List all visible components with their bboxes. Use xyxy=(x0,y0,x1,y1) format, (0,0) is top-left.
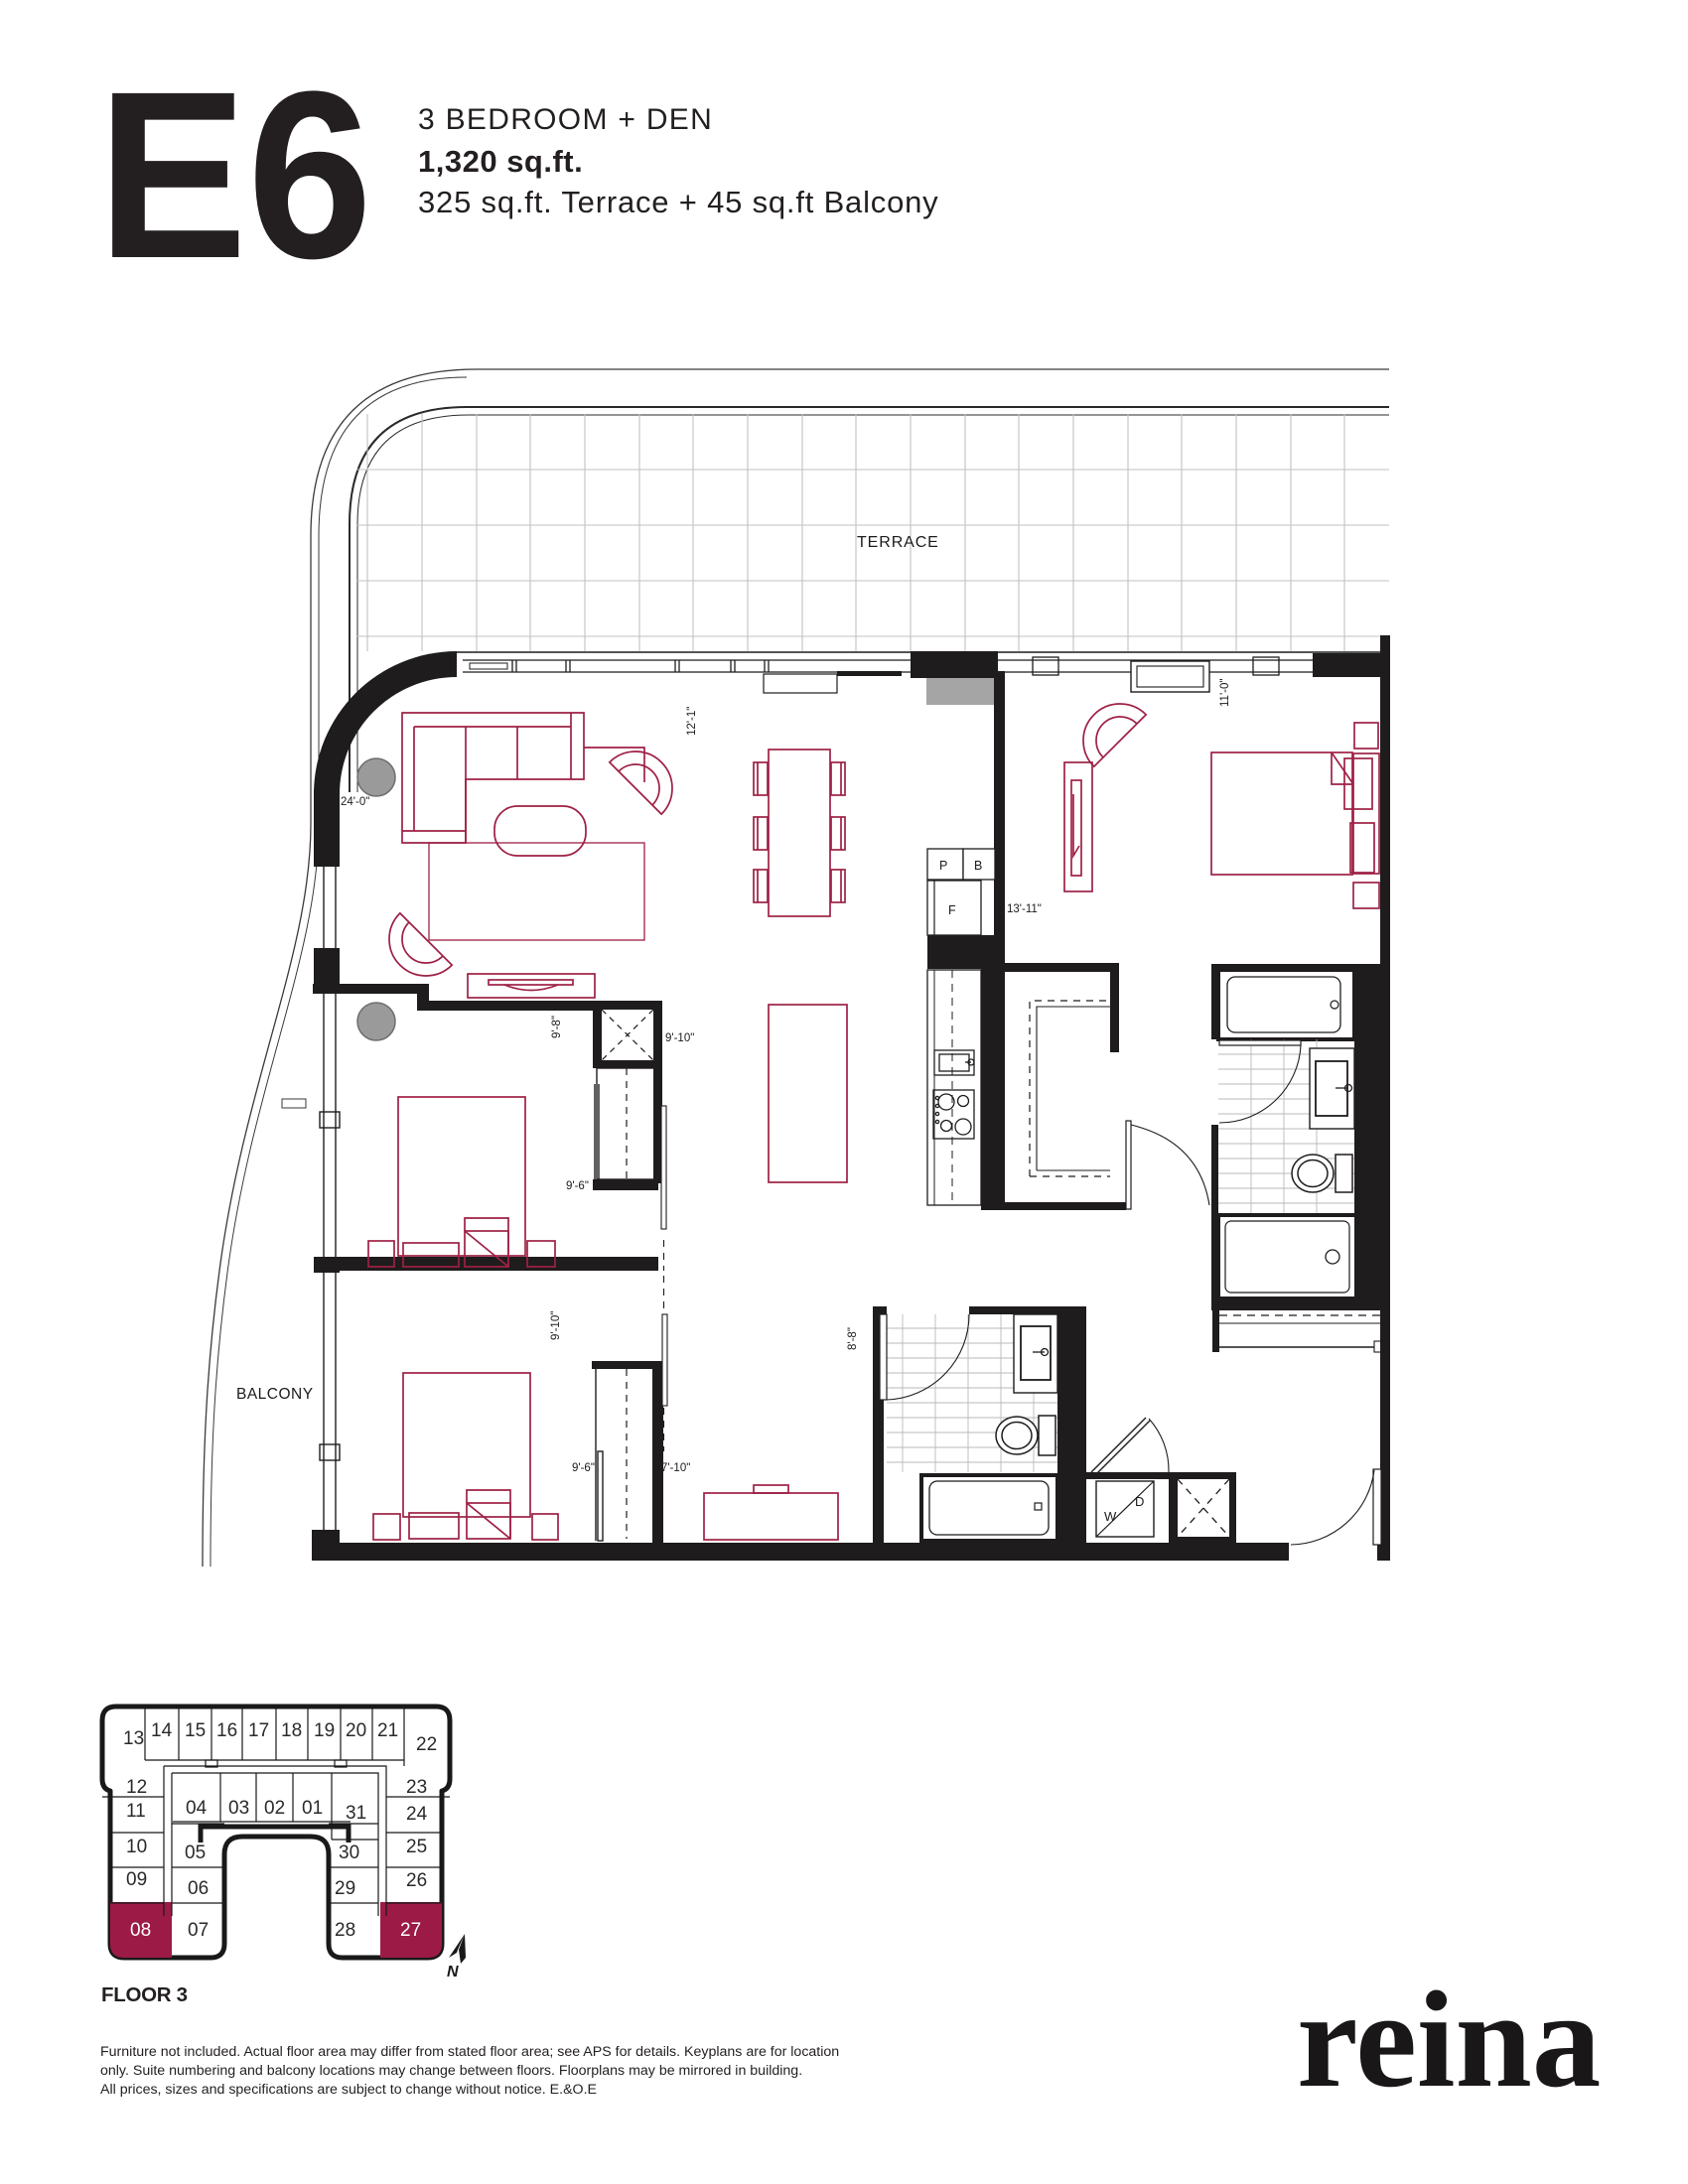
svg-text:B: B xyxy=(974,859,982,873)
svg-text:325 sq.ft. Terrace + 45 sq.ft: 325 sq.ft. Terrace + 45 sq.ft Balcony xyxy=(418,185,938,219)
svg-text:19: 19 xyxy=(314,1720,335,1741)
svg-text:All prices, sizes and specific: All prices, sizes and specifications are… xyxy=(100,2082,597,2098)
svg-text:14: 14 xyxy=(151,1720,173,1741)
svg-text:20: 20 xyxy=(346,1720,366,1741)
svg-text:9'-10": 9'-10" xyxy=(550,1311,562,1340)
svg-text:27: 27 xyxy=(400,1920,421,1941)
svg-text:1,320 sq.ft.: 1,320 sq.ft. xyxy=(418,144,583,179)
svg-text:W: W xyxy=(1104,1509,1117,1524)
svg-text:9'-8": 9'-8" xyxy=(551,1016,563,1038)
svg-text:9'-6": 9'-6" xyxy=(566,1180,589,1192)
svg-text:18: 18 xyxy=(281,1720,302,1741)
svg-text:31: 31 xyxy=(346,1803,366,1824)
svg-text:12: 12 xyxy=(126,1777,147,1798)
svg-text:8'-8": 8'-8" xyxy=(847,1327,859,1350)
svg-text:15: 15 xyxy=(185,1720,206,1741)
svg-text:reina: reina xyxy=(1297,1964,1601,2116)
svg-text:08: 08 xyxy=(130,1920,151,1941)
svg-text:22: 22 xyxy=(416,1734,437,1755)
svg-text:05: 05 xyxy=(185,1843,206,1863)
svg-text:09: 09 xyxy=(126,1869,147,1890)
svg-text:29: 29 xyxy=(335,1878,355,1899)
svg-text:16: 16 xyxy=(216,1720,237,1741)
svg-text:D: D xyxy=(1135,1494,1144,1509)
svg-text:24'-0": 24'-0" xyxy=(341,796,369,808)
svg-text:12'-1": 12'-1" xyxy=(686,707,698,736)
svg-text:25: 25 xyxy=(406,1837,427,1857)
svg-text:28: 28 xyxy=(335,1920,355,1941)
svg-text:04: 04 xyxy=(186,1798,208,1819)
svg-text:F: F xyxy=(948,903,956,917)
svg-text:N: N xyxy=(447,1964,459,1980)
svg-text:9'-10": 9'-10" xyxy=(665,1032,694,1044)
svg-text:7'-10": 7'-10" xyxy=(661,1462,690,1474)
svg-text:10: 10 xyxy=(126,1837,147,1857)
svg-text:03: 03 xyxy=(228,1798,249,1819)
svg-text:9'-6": 9'-6" xyxy=(572,1462,595,1474)
svg-text:07: 07 xyxy=(188,1920,209,1941)
svg-text:02: 02 xyxy=(264,1798,285,1819)
svg-text:11: 11 xyxy=(126,1801,146,1822)
svg-text:E6: E6 xyxy=(97,42,372,308)
svg-text:TERRACE: TERRACE xyxy=(857,534,939,551)
svg-text:3 BEDROOM + DEN: 3 BEDROOM + DEN xyxy=(418,103,713,136)
svg-text:only. Suite numbering and balc: only. Suite numbering and balcony locati… xyxy=(100,2063,802,2079)
svg-text:11'-0": 11'-0" xyxy=(1219,679,1231,707)
svg-text:26: 26 xyxy=(406,1870,427,1891)
svg-text:FLOOR 3: FLOOR 3 xyxy=(101,1983,188,2006)
svg-text:17: 17 xyxy=(248,1720,269,1741)
svg-text:06: 06 xyxy=(188,1878,209,1899)
svg-text:24: 24 xyxy=(406,1804,428,1825)
svg-text:Furniture not included. Actual: Furniture not included. Actual floor are… xyxy=(100,2044,839,2060)
svg-text:13'-11": 13'-11" xyxy=(1007,903,1042,915)
svg-text:23: 23 xyxy=(406,1777,427,1798)
svg-text:13: 13 xyxy=(123,1728,144,1749)
svg-text:21: 21 xyxy=(377,1720,398,1741)
svg-text:P: P xyxy=(939,859,947,873)
svg-text:BALCONY: BALCONY xyxy=(236,1386,314,1403)
svg-text:01: 01 xyxy=(302,1798,323,1819)
svg-text:30: 30 xyxy=(339,1843,359,1863)
